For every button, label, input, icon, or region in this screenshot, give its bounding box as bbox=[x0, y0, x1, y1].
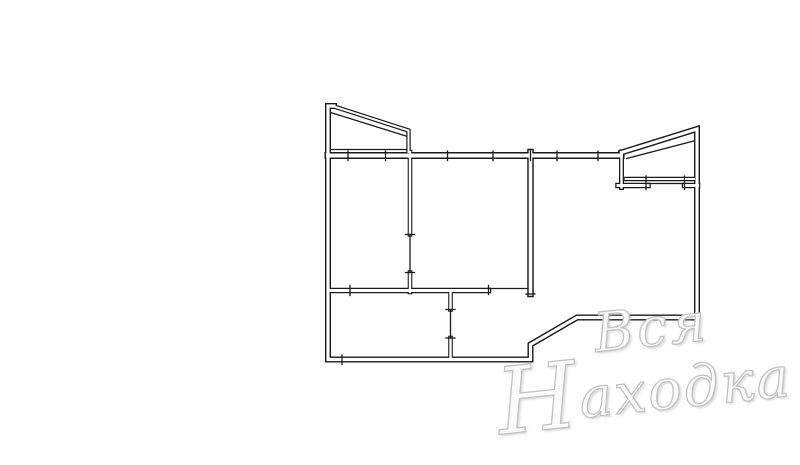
wall-balcony-left-outline bbox=[334, 107, 409, 153]
wall-outer-boundary bbox=[328, 106, 697, 360]
floor-plan-walls-black bbox=[328, 106, 698, 360]
page-canvas: Вся Находка bbox=[0, 0, 800, 465]
wall-gap-balcony-left-outline bbox=[334, 107, 409, 153]
floor-plan-svg bbox=[0, 0, 800, 465]
